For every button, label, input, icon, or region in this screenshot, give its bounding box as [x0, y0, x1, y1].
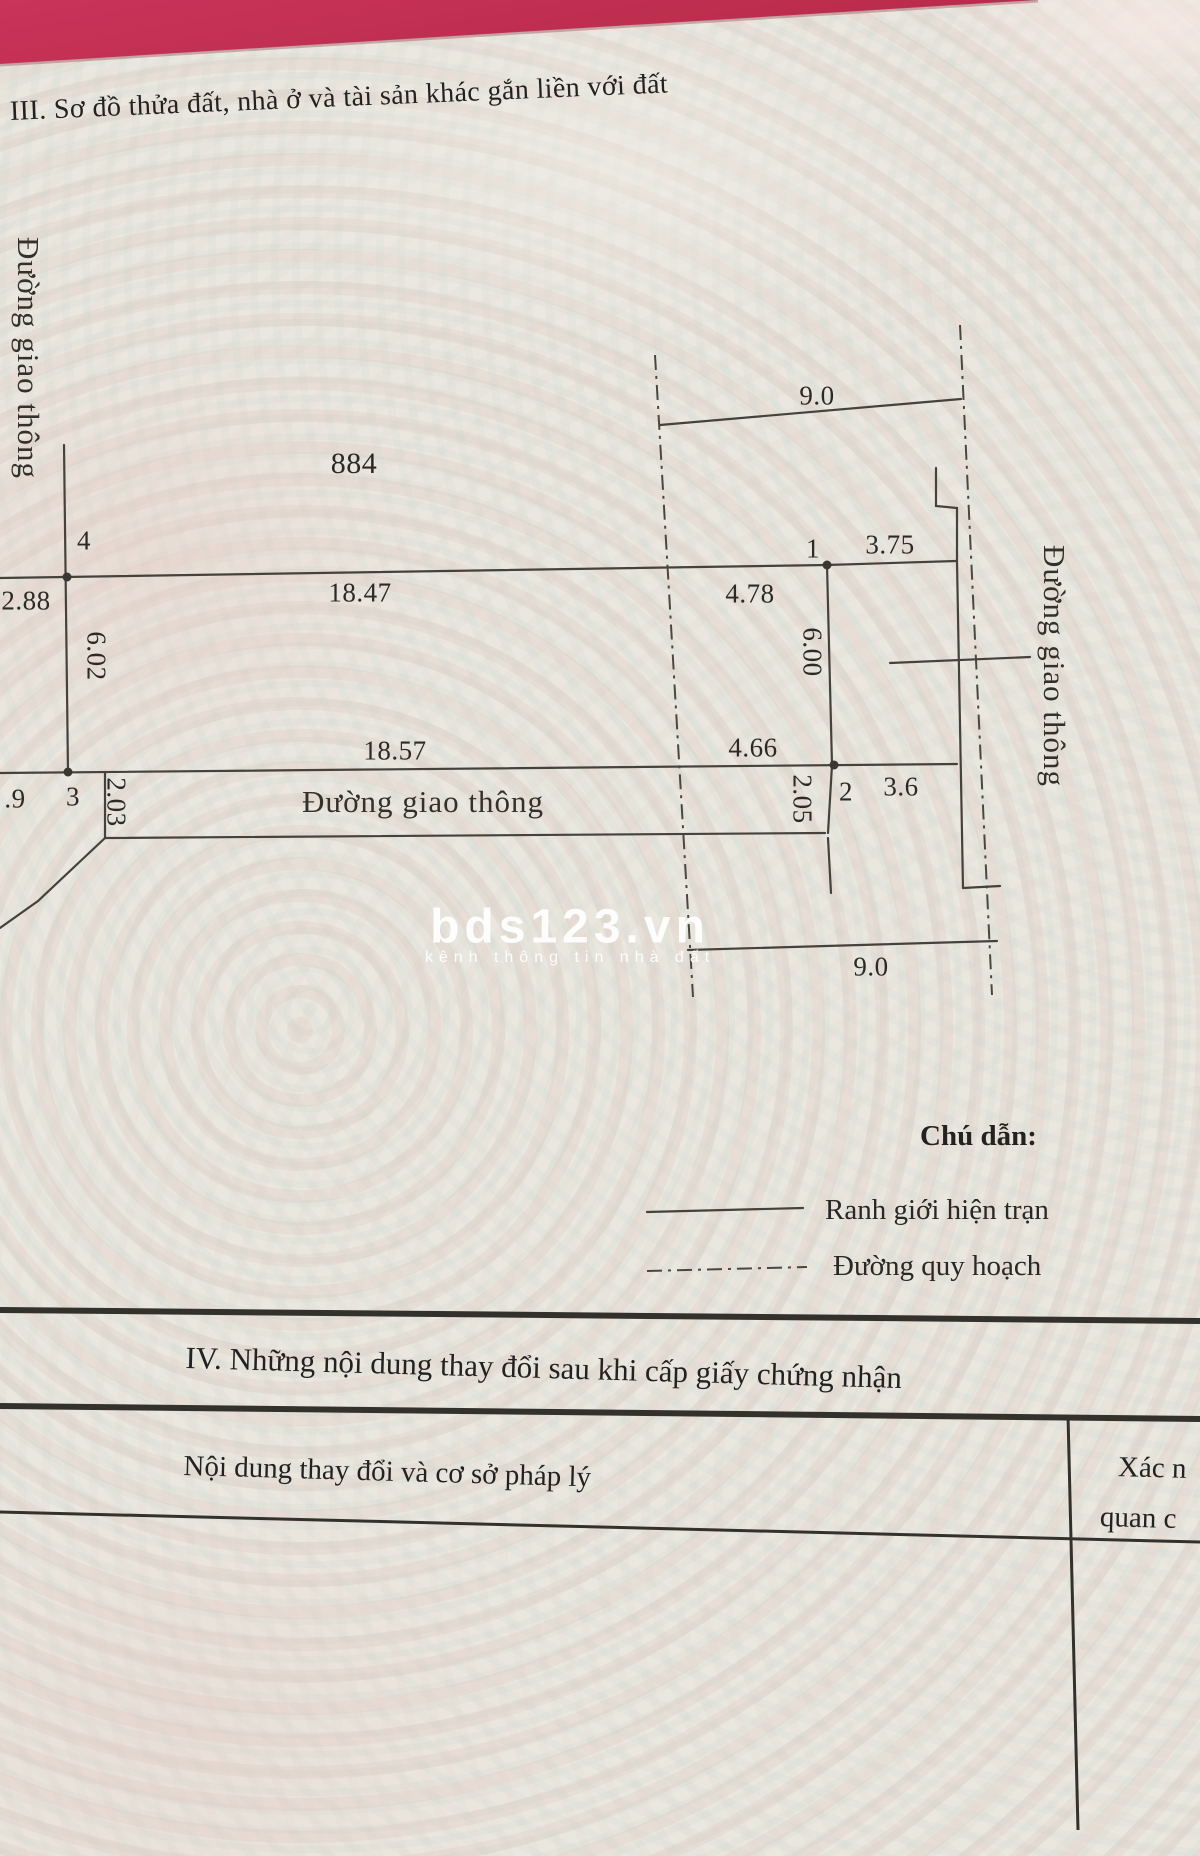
point-2: 2 [839, 777, 853, 808]
point-3: 3 [66, 782, 80, 813]
watermark-brand: bds123.vn [430, 900, 710, 955]
dim-3-6: 3.6 [883, 772, 918, 803]
dim-18-57: 18.57 [363, 736, 426, 767]
dim-18-47: 18.47 [328, 578, 391, 609]
dim-9-0-top: 9.0 [799, 381, 834, 412]
red-fabric-background [0, 0, 1200, 70]
dim-4-78: 4.78 [725, 579, 774, 610]
section-iii-title: III. Sơ đồ thửa đất, nhà ở và tài sản kh… [9, 68, 668, 128]
legend-title: Chú dẫn: [920, 1120, 1037, 1153]
dim-2-05: 2.05 [787, 774, 818, 823]
dim-9-0-bottom: 9.0 [853, 952, 888, 983]
road-label-left: Đường giao thông [10, 237, 46, 479]
point-4: 4 [77, 526, 91, 557]
land-certificate-photo: III. Sơ đồ thửa đất, nhà ở và tài sản kh… [0, 0, 1200, 1856]
dim-2-03: 2.03 [101, 777, 132, 826]
dim-2-88: 2.88 [1, 586, 50, 617]
road-label-right: Đường giao thông [1036, 545, 1072, 787]
watermark-tagline: kênh thông tin nhà đất [425, 949, 715, 967]
dim-dot-9: .9 [4, 784, 25, 815]
road-label-bottom: Đường giao thông [302, 784, 544, 820]
dim-4-66: 4.66 [728, 733, 777, 764]
table-header-confirmation-line2: quan c [1100, 1501, 1177, 1536]
legend-dashdot-label: Đường quy hoạch [833, 1250, 1041, 1283]
point-1: 1 [806, 534, 820, 565]
dim-6-00: 6.00 [797, 627, 828, 676]
dim-3-75: 3.75 [865, 530, 914, 561]
dim-6-02: 6.02 [81, 631, 112, 680]
parcel-number: 884 [331, 447, 378, 481]
table-header-changes: Nội dung thay đổi và cơ sở pháp lý [183, 1450, 591, 1494]
section-iv-title: IV. Những nội dung thay đổi sau khi cấp … [185, 1340, 902, 1396]
legend-solid-label: Ranh giới hiện trạn [825, 1194, 1049, 1227]
table-header-confirmation-line1: Xác n [1118, 1451, 1187, 1486]
